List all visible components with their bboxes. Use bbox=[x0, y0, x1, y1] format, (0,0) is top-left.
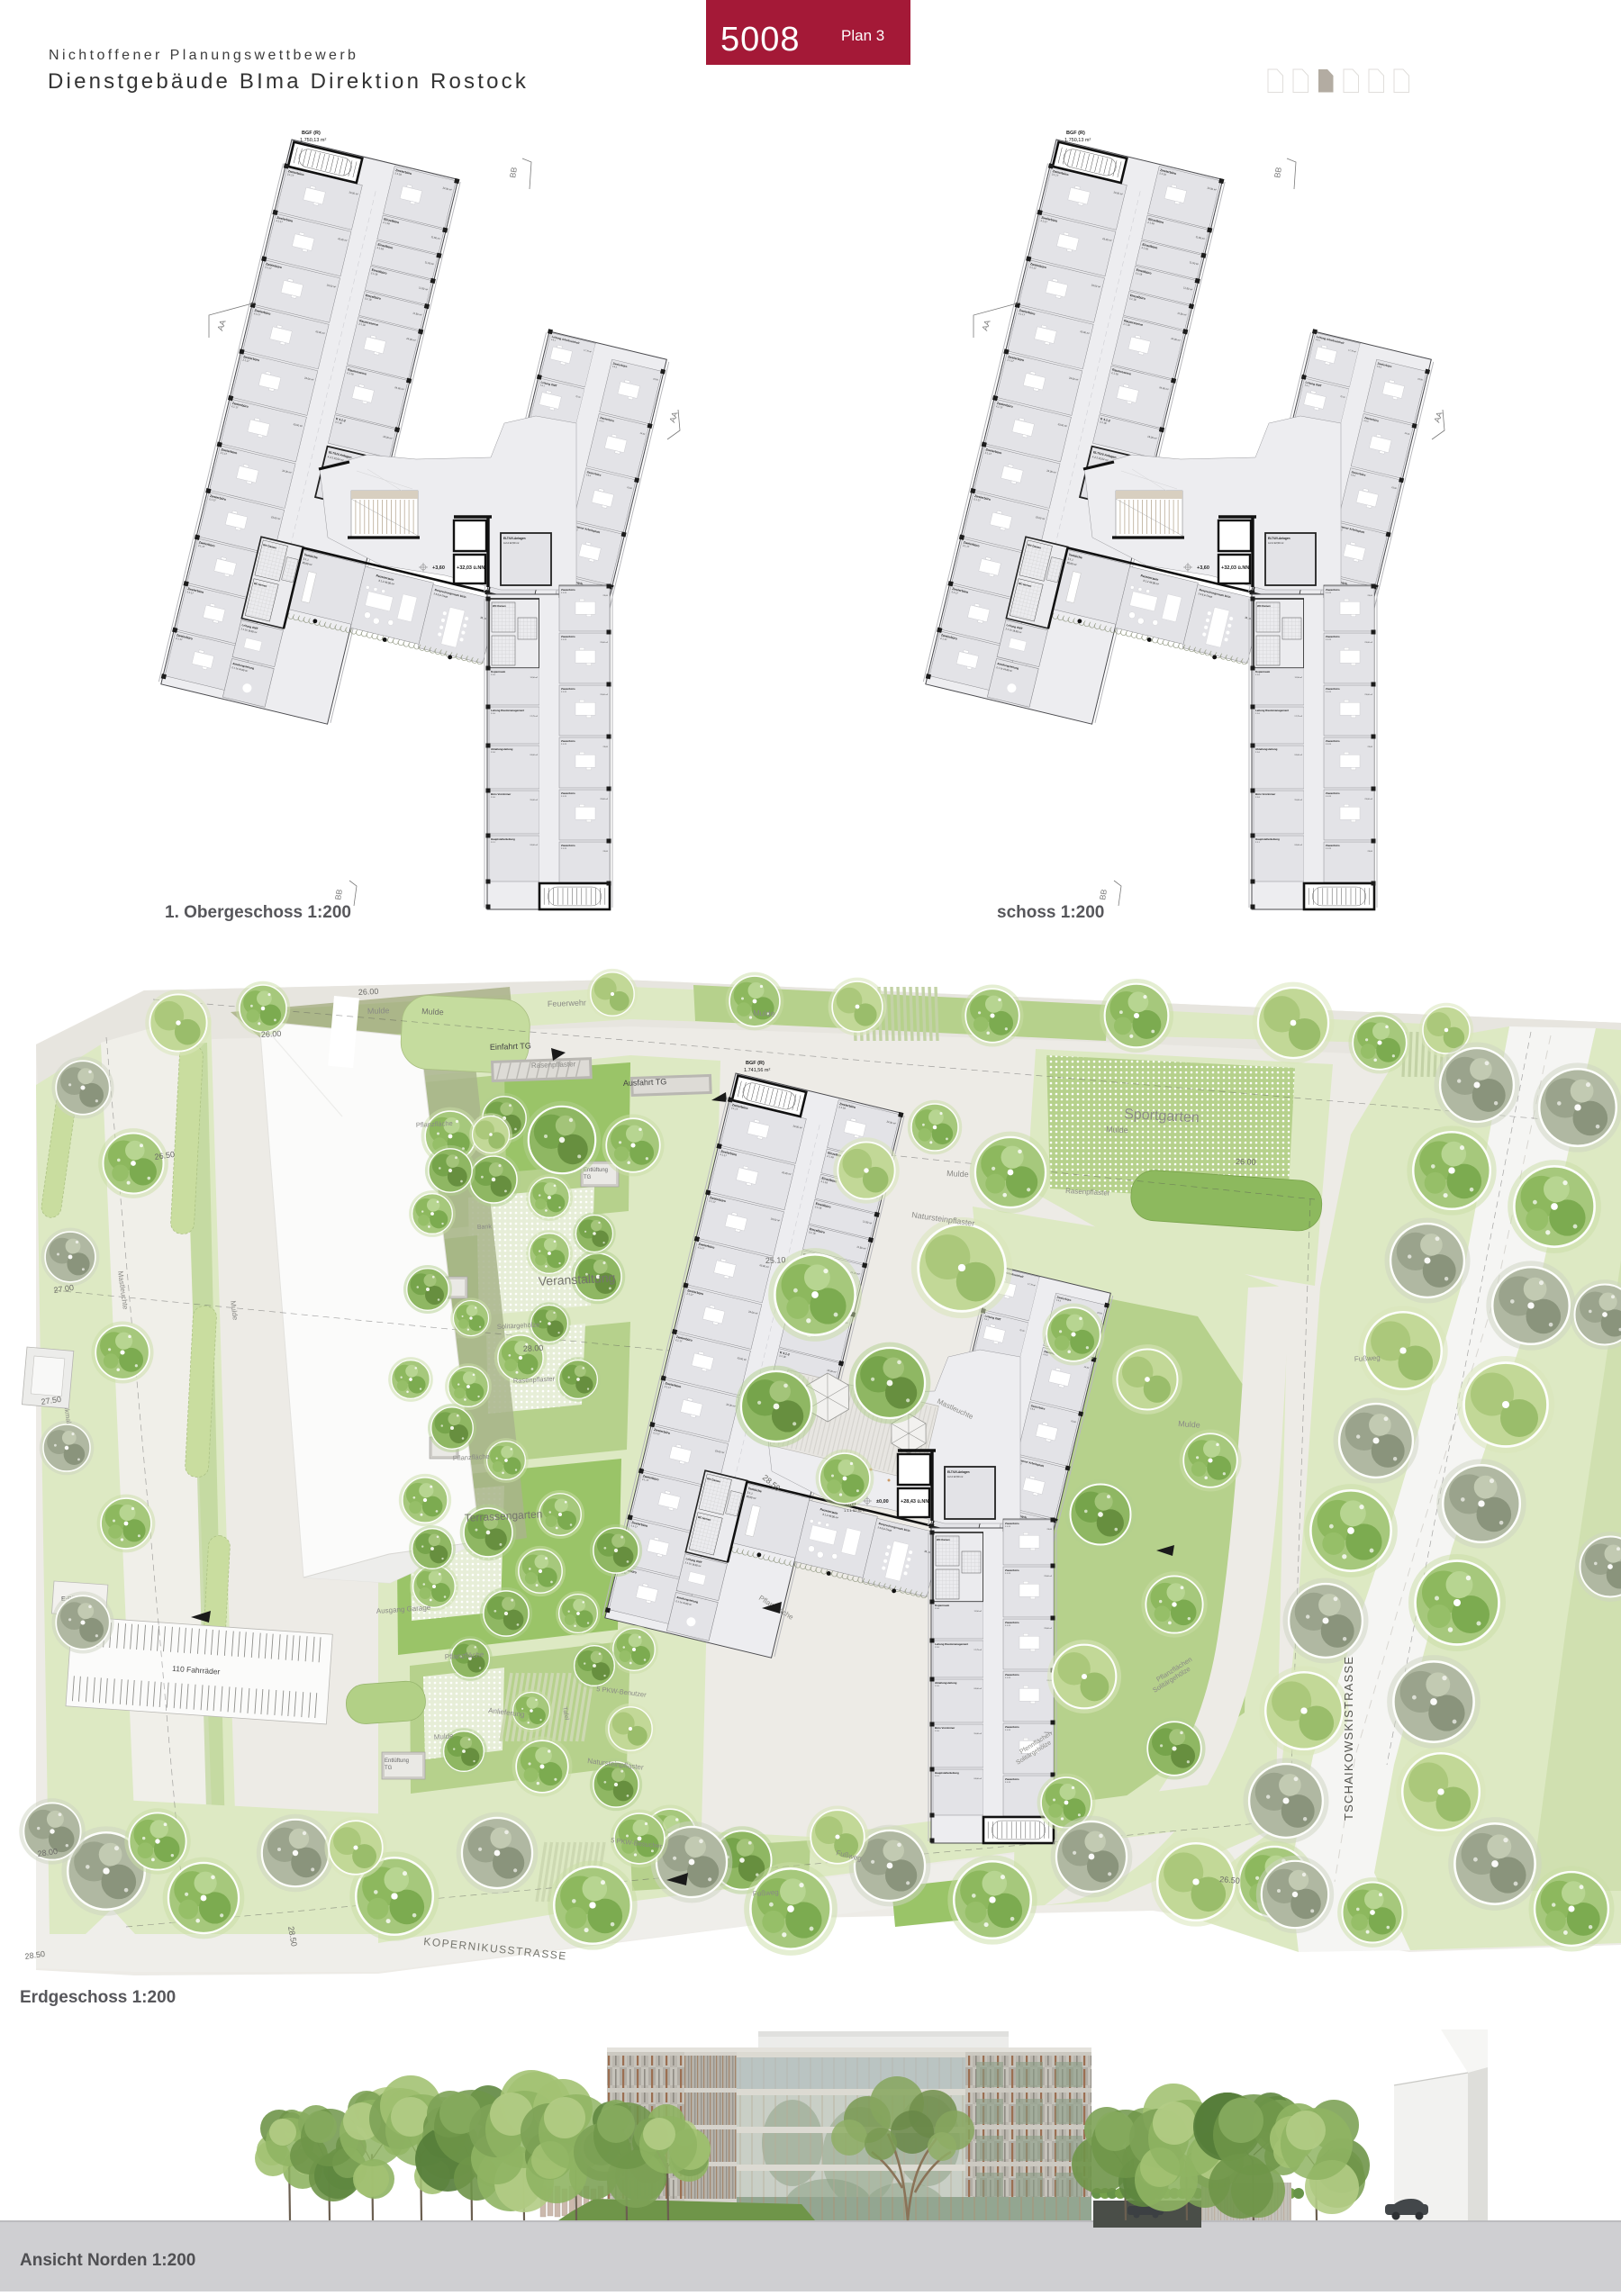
svg-text:15,00 m²: 15,00 m² bbox=[974, 1732, 982, 1735]
svg-text:2.1.6: 2.1.6 bbox=[491, 752, 496, 754]
svg-text:BB: BB bbox=[1098, 889, 1109, 901]
svg-text:23,00: 23,00 bbox=[1047, 1529, 1053, 1531]
svg-text:Mulde: Mulde bbox=[946, 1169, 969, 1179]
svg-text:+28,43 ü.NN: +28,43 ü.NN bbox=[901, 1499, 928, 1505]
svg-text:Zweierbüro: Zweierbüro bbox=[1005, 1522, 1019, 1525]
svg-text:2.1.6: 2.1.6 bbox=[491, 674, 496, 676]
svg-text:2.1.1: 2.1.1 bbox=[1255, 842, 1261, 844]
svg-text:26.00: 26.00 bbox=[1236, 1157, 1256, 1167]
svg-text:+3,60: +3,60 bbox=[432, 565, 445, 571]
svg-text:15,00 m²: 15,00 m² bbox=[530, 799, 538, 801]
svg-text:23,00 m²: 23,00 m² bbox=[600, 798, 608, 800]
svg-text:Zweierbüro: Zweierbüro bbox=[561, 791, 575, 795]
svg-text:Fußweg: Fußweg bbox=[1354, 1353, 1381, 1363]
svg-text:Bank: Bank bbox=[477, 1224, 493, 1231]
svg-text:WC Damen: WC Damen bbox=[937, 1538, 950, 1541]
svg-text:Leitung Raummanagement: Leitung Raummanagement bbox=[491, 709, 524, 712]
svg-text:24,00 m²: 24,00 m² bbox=[530, 754, 538, 756]
svg-text:2.1.21: 2.1.21 bbox=[1005, 1625, 1011, 1627]
svg-text:Zweierbüro: Zweierbüro bbox=[561, 844, 575, 847]
svg-text:BGF (R): BGF (R) bbox=[1066, 131, 1085, 136]
svg-text:2.1.1: 2.1.1 bbox=[491, 842, 496, 844]
svg-text:WC Damen: WC Damen bbox=[1257, 604, 1271, 608]
svg-text:Zweierbüro: Zweierbüro bbox=[561, 687, 575, 691]
svg-text:2.1.21: 2.1.21 bbox=[1326, 639, 1332, 641]
svg-text:Mulde: Mulde bbox=[753, 1008, 775, 1018]
svg-text:23,00: 23,00 bbox=[603, 746, 609, 748]
svg-text:Abteilungsleitung: Abteilungsleitung bbox=[491, 747, 513, 751]
svg-text:Ansicht Norden 1:200: Ansicht Norden 1:200 bbox=[20, 2251, 195, 2270]
svg-text:Leitung Raummanagement: Leitung Raummanagement bbox=[1255, 709, 1289, 712]
svg-text:2.1.1: 2.1.1 bbox=[935, 1776, 940, 1777]
svg-text:24,00 m²: 24,00 m² bbox=[1294, 844, 1302, 846]
svg-text:WC Damen: WC Damen bbox=[493, 604, 506, 608]
svg-text:Zweierbüro: Zweierbüro bbox=[1005, 1568, 1019, 1572]
svg-text:Mulde: Mulde bbox=[367, 1006, 390, 1016]
svg-text:Kopierraum: Kopierraum bbox=[491, 670, 506, 673]
svg-text:Nichtoffener Planungswettbewer: Nichtoffener Planungswettbewerb bbox=[49, 48, 358, 63]
svg-text:Erdgeschoss 1:200: Erdgeschoss 1:200 bbox=[20, 1988, 176, 2007]
svg-text:TG: TG bbox=[385, 1766, 393, 1771]
svg-text:2.1.6: 2.1.6 bbox=[1255, 713, 1261, 715]
svg-text:Abteilungsleitung: Abteilungsleitung bbox=[935, 1681, 957, 1685]
svg-text:2.1.21: 2.1.21 bbox=[1005, 1526, 1011, 1528]
svg-text:Zweierbüro: Zweierbüro bbox=[1326, 791, 1340, 795]
svg-text:BB: BB bbox=[1272, 167, 1283, 179]
svg-text:1. Obergeschoss 1:200: 1. Obergeschoss 1:200 bbox=[165, 903, 351, 922]
svg-text:Zweierbüro: Zweierbüro bbox=[1005, 1621, 1019, 1624]
svg-text:Zweierbüro: Zweierbüro bbox=[1326, 844, 1340, 847]
svg-text:Mulde: Mulde bbox=[1178, 1419, 1200, 1430]
svg-text:Feuerwehr: Feuerwehr bbox=[548, 999, 586, 1008]
svg-text:BB: BB bbox=[333, 889, 344, 901]
svg-text:Zweierbüro: Zweierbüro bbox=[561, 739, 575, 743]
svg-text:4.2.2 22,50 m²: 4.2.2 22,50 m² bbox=[503, 541, 519, 545]
svg-text:TG: TG bbox=[584, 1175, 592, 1180]
svg-text:Zweierbüro: Zweierbüro bbox=[1326, 588, 1340, 592]
svg-text:BB: BB bbox=[508, 167, 519, 179]
svg-text:11,50 m²: 11,50 m² bbox=[974, 1610, 983, 1613]
svg-text:ELT/UV-Anlagen: ELT/UV-Anlagen bbox=[503, 537, 526, 540]
svg-text:Zweierbüro: Zweierbüro bbox=[1005, 1725, 1019, 1729]
svg-text:11,50 m²: 11,50 m² bbox=[1295, 676, 1303, 679]
svg-text:Zweierbüro: Zweierbüro bbox=[1005, 1777, 1019, 1781]
svg-text:Kopierraum: Kopierraum bbox=[1255, 670, 1271, 673]
svg-text:2.1.21: 2.1.21 bbox=[561, 796, 567, 798]
svg-text:Büro Vorzimmer: Büro Vorzimmer bbox=[1255, 792, 1276, 796]
svg-text:23,00 m²: 23,00 m² bbox=[600, 641, 608, 644]
svg-text:±0,00: ±0,00 bbox=[876, 1499, 889, 1505]
svg-text:4.2.2 22,50 m²: 4.2.2 22,50 m² bbox=[947, 1475, 963, 1478]
svg-text:Mulde: Mulde bbox=[1106, 1125, 1128, 1134]
svg-text:+32,03 ü.NN: +32,03 ü.NN bbox=[1221, 565, 1249, 571]
svg-text:5008: 5008 bbox=[720, 21, 801, 59]
svg-text:23,00: 23,00 bbox=[1368, 746, 1373, 748]
svg-text:2.1.6: 2.1.6 bbox=[1255, 797, 1261, 799]
svg-text:23,00 m²: 23,00 m² bbox=[1044, 1575, 1052, 1577]
svg-text:ELT/UV-Anlagen: ELT/UV-Anlagen bbox=[1268, 537, 1290, 540]
svg-text:1.741,56 m²: 1.741,56 m² bbox=[744, 1068, 771, 1073]
svg-text:Zweierbüro: Zweierbüro bbox=[561, 588, 575, 592]
svg-text:Abteilungsleitung: Abteilungsleitung bbox=[1255, 747, 1278, 751]
svg-text:Rasenpflaster: Rasenpflaster bbox=[531, 1060, 576, 1070]
svg-text:24,00 m²: 24,00 m² bbox=[530, 844, 538, 846]
svg-text:1.1.1 52,91 m²: 1.1.1 52,91 m² bbox=[844, 1508, 867, 1513]
svg-text:Einfahrt TG: Einfahrt TG bbox=[490, 1041, 531, 1052]
svg-text:Kopierraum: Kopierraum bbox=[935, 1604, 950, 1607]
svg-text:2.1.21: 2.1.21 bbox=[1326, 744, 1332, 746]
svg-text:Leitung Raummanagement: Leitung Raummanagement bbox=[935, 1642, 968, 1646]
svg-text:2.1.6: 2.1.6 bbox=[491, 713, 496, 715]
svg-text:Hauptstellenleitung: Hauptstellenleitung bbox=[1255, 837, 1280, 841]
svg-text:17,75 m²: 17,75 m² bbox=[1294, 715, 1302, 718]
svg-text:2.1.21: 2.1.21 bbox=[561, 692, 567, 693]
svg-text:28.00: 28.00 bbox=[523, 1343, 544, 1353]
svg-text:24,00 m²: 24,00 m² bbox=[974, 1687, 982, 1690]
svg-text:2.1.21: 2.1.21 bbox=[1326, 848, 1332, 850]
svg-text:15,00 m²: 15,00 m² bbox=[1294, 799, 1302, 801]
svg-text:Entlüftung: Entlüftung bbox=[385, 1758, 409, 1764]
svg-text:Mulde: Mulde bbox=[421, 1007, 444, 1017]
svg-text:2.1.6: 2.1.6 bbox=[935, 1686, 940, 1687]
svg-text:17,75 m²: 17,75 m² bbox=[974, 1649, 982, 1651]
svg-text:2.1.21: 2.1.21 bbox=[1326, 592, 1332, 594]
svg-text:2.1.6: 2.1.6 bbox=[491, 797, 496, 799]
svg-text:2.1.6: 2.1.6 bbox=[935, 1647, 940, 1649]
svg-text:23,00: 23,00 bbox=[1368, 851, 1373, 853]
svg-text:BGF (R): BGF (R) bbox=[302, 131, 321, 136]
svg-text:1.750,13 m²: 1.750,13 m² bbox=[1064, 138, 1091, 143]
svg-text:Dienstgebäude BIma Direktion R: Dienstgebäude BIma Direktion Rostock bbox=[48, 69, 529, 94]
svg-text:2.1.6: 2.1.6 bbox=[935, 1731, 940, 1732]
svg-text:2.1.6: 2.1.6 bbox=[1255, 752, 1261, 754]
svg-text:23,00: 23,00 bbox=[1368, 595, 1373, 597]
svg-text:24,00 m²: 24,00 m² bbox=[974, 1777, 982, 1780]
svg-text:2.1.21: 2.1.21 bbox=[561, 848, 567, 850]
svg-text:Hauptstellenleitung: Hauptstellenleitung bbox=[491, 837, 515, 841]
svg-text:4.2.2 22,50 m²: 4.2.2 22,50 m² bbox=[1268, 541, 1283, 545]
svg-text:23,00 m²: 23,00 m² bbox=[1364, 693, 1372, 696]
svg-text:Hauptstellenleitung: Hauptstellenleitung bbox=[935, 1771, 959, 1775]
svg-text:23,00 m²: 23,00 m² bbox=[1364, 641, 1372, 644]
svg-text:schoss 1:200: schoss 1:200 bbox=[997, 903, 1104, 922]
svg-text:26.00: 26.00 bbox=[261, 1029, 282, 1039]
svg-text:2.1.21: 2.1.21 bbox=[1326, 692, 1332, 693]
svg-text:Büro Vorzimmer: Büro Vorzimmer bbox=[491, 792, 512, 796]
svg-text:26.00: 26.00 bbox=[358, 987, 379, 997]
svg-text:Plan 3: Plan 3 bbox=[841, 27, 884, 44]
svg-text:+3,60: +3,60 bbox=[1197, 565, 1209, 571]
svg-text:23,00 m²: 23,00 m² bbox=[600, 693, 608, 696]
svg-text:2.1.21: 2.1.21 bbox=[1005, 1573, 1011, 1575]
svg-text:Zweierbüro: Zweierbüro bbox=[1326, 739, 1340, 743]
svg-text:17,75 m²: 17,75 m² bbox=[530, 715, 538, 718]
svg-text:2.1.21: 2.1.21 bbox=[1326, 796, 1332, 798]
svg-text:23,00 m²: 23,00 m² bbox=[1044, 1627, 1052, 1630]
svg-text:2.1.21: 2.1.21 bbox=[1005, 1677, 1011, 1679]
svg-text:2.1.21: 2.1.21 bbox=[561, 639, 567, 641]
svg-text:2.1.6: 2.1.6 bbox=[935, 1608, 940, 1610]
svg-text:Büro Vorzimmer: Büro Vorzimmer bbox=[935, 1726, 955, 1730]
svg-text:+32,03 ü.NN: +32,03 ü.NN bbox=[457, 565, 484, 571]
svg-text:2.1.21: 2.1.21 bbox=[1005, 1730, 1011, 1731]
svg-text:Zweierbüro: Zweierbüro bbox=[1326, 635, 1340, 638]
svg-text:24,00 m²: 24,00 m² bbox=[1294, 754, 1302, 756]
svg-text:Zweierbüro: Zweierbüro bbox=[561, 635, 575, 638]
svg-text:2.1.6: 2.1.6 bbox=[1255, 674, 1261, 676]
svg-text:2.1.21: 2.1.21 bbox=[561, 744, 567, 746]
svg-text:2.1.21: 2.1.21 bbox=[561, 592, 567, 594]
svg-text:Zweierbüro: Zweierbüro bbox=[1326, 687, 1340, 691]
svg-text:11,50 m²: 11,50 m² bbox=[530, 676, 539, 679]
svg-text:Mulde: Mulde bbox=[434, 1731, 455, 1741]
svg-text:ELT/UV-Anlagen: ELT/UV-Anlagen bbox=[947, 1470, 970, 1474]
svg-text:23,00: 23,00 bbox=[603, 851, 609, 853]
svg-text:1.750,13 m²: 1.750,13 m² bbox=[300, 138, 327, 143]
svg-text:23,00: 23,00 bbox=[603, 595, 609, 597]
svg-text:Ausfahrt TG: Ausfahrt TG bbox=[623, 1077, 667, 1088]
svg-text:2.1.21: 2.1.21 bbox=[1005, 1782, 1011, 1784]
svg-text:26.50: 26.50 bbox=[1219, 1875, 1240, 1885]
svg-text:Zweierbüro: Zweierbüro bbox=[1005, 1673, 1019, 1677]
svg-text:23,00 m²: 23,00 m² bbox=[1364, 798, 1372, 800]
svg-text:TSCHAIKOWSKISTRASSE: TSCHAIKOWSKISTRASSE bbox=[1342, 1656, 1355, 1821]
svg-text:BGF (R): BGF (R) bbox=[746, 1061, 765, 1066]
svg-text:25.10: 25.10 bbox=[765, 1255, 786, 1265]
